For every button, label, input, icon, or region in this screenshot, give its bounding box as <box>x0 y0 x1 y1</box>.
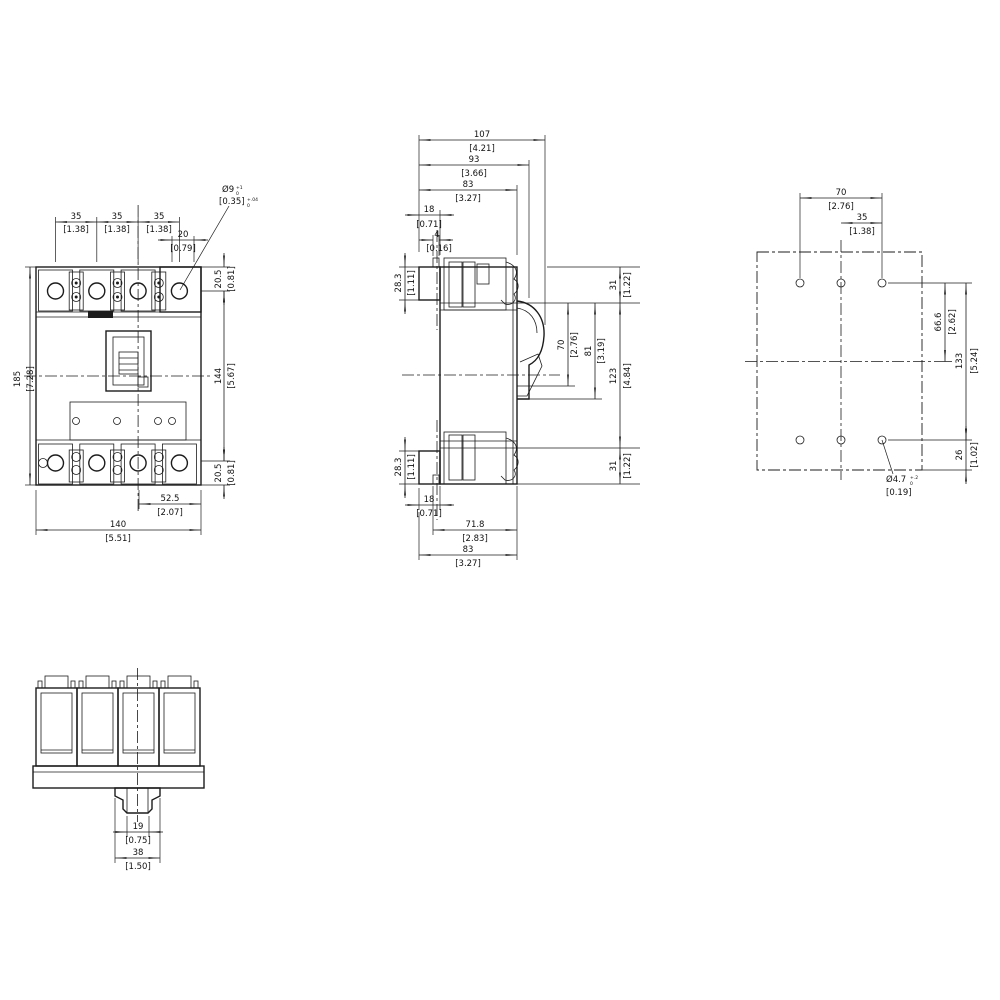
toggle-handle <box>106 331 151 391</box>
dim-body-height-in: [5.67] <box>227 363 237 389</box>
dim-depth-total-in: [4.21] <box>469 144 495 154</box>
dim-depth-escutcheon-in: [3.66] <box>461 169 487 179</box>
dim-rail-width-mm: 38 <box>133 848 144 858</box>
dim-hole-pitch-half-mm: 35 <box>857 213 868 223</box>
dim-width-mm: 140 <box>110 520 126 530</box>
side-handle <box>517 301 544 399</box>
dim-gap4-in: [0.16] <box>426 244 452 254</box>
dim-pole-pitch-3-in: [1.38] <box>146 225 172 235</box>
mounting-hole-leader <box>882 440 893 474</box>
dim-mounting-hole-mm-tol-plus: +.2 <box>910 475 918 481</box>
dim-gap4-mm: 4 <box>434 230 439 240</box>
dim-body-height-mm: 144 <box>214 368 224 384</box>
dim-width-in: [5.51] <box>105 534 131 544</box>
dim-pole-pitch-1-in: [1.38] <box>63 225 89 235</box>
dim-rear-step-mm: 18 <box>424 205 435 215</box>
dim-escutcheon-window-mm: 81 <box>584 346 594 357</box>
dimension-drawing-canvas: 35 [1.38] 35 [1.38] 35 [1.38] 20 [0.79] … <box>0 0 1000 1000</box>
dim-hole-pitch-in: [2.76] <box>828 202 854 212</box>
dim-pole-pitch-2-mm: 35 <box>112 212 123 222</box>
dim-top-section-in: [1.22] <box>623 272 633 298</box>
dim-rear-step-in: [0.71] <box>416 220 442 230</box>
dim-hole-to-center-mm: 66.6 <box>934 313 944 332</box>
dim-offset20-mm: 20 <box>178 230 189 240</box>
dim-bottom-section-mm: 31 <box>609 461 619 472</box>
dim-pole-pitch-3-mm: 35 <box>154 212 165 222</box>
dim-top-margin-mm: 20.5 <box>214 270 224 289</box>
breaker-footprint-phantom <box>757 252 922 470</box>
dim-height-in: [7.28] <box>26 366 36 392</box>
dim-terminal-height-bottom-in: [1.11] <box>407 454 417 480</box>
accessory-cover <box>70 402 186 440</box>
dim-rail-slot-in: [0.75] <box>125 836 151 846</box>
dim-terminal-height-bottom-mm: 28.3 <box>394 458 404 477</box>
dim-hole-to-center-in: [2.62] <box>948 309 958 335</box>
mounting-hole <box>796 279 804 287</box>
dim-rail-slot-mm: 19 <box>133 822 144 832</box>
dim-depth-body-bottom-in: [3.27] <box>455 559 481 569</box>
dim-handle-window-mm: 70 <box>557 340 567 351</box>
front-view: 35 [1.38] 35 [1.38] 35 [1.38] 20 [0.79] … <box>13 184 258 544</box>
side-view: 107 [4.21] 93 [3.66] 83 [3.27] 18 [0.71]… <box>394 130 640 569</box>
rear-drilling-view: 70 [2.76] 35 [1.38] 66.6 [2.62] 133 [5.2… <box>745 188 980 498</box>
dim-escutcheon-window-in: [3.19] <box>597 338 607 364</box>
dim-terminal-hole-in: [0.35] <box>219 197 245 207</box>
dim-offset20-in: [0.79] <box>170 244 196 254</box>
dim-hole-pitch-half-in: [1.38] <box>849 227 875 237</box>
dim-depth-escutcheon-mm: 93 <box>469 155 480 165</box>
bottom-dimensions: 19 [0.75] 38 [1.50] <box>113 798 163 872</box>
dim-hole-rows-in: [5.24] <box>970 348 980 374</box>
dim-terminal-height-top-mm: 28.3 <box>394 274 404 293</box>
top-terminals <box>39 267 202 312</box>
dim-mid-section-in: [4.84] <box>623 363 633 389</box>
dim-pole-pitch-1-mm: 35 <box>71 212 82 222</box>
bottom-terminals <box>39 444 197 484</box>
dim-mid-section-mm: 123 <box>609 368 619 384</box>
dim-hole-pitch-mm: 70 <box>836 188 847 198</box>
bottom-view: 19 [0.75] 38 [1.50] <box>33 668 204 872</box>
rating-label <box>88 311 113 318</box>
dim-terminal-hole-in-tol-minus: 0 <box>247 203 250 209</box>
side-top-terminal <box>433 258 518 310</box>
dim-rear-step-bottom-in: [0.71] <box>416 509 442 519</box>
dim-handle-window-in: [2.76] <box>570 332 580 358</box>
dim-depth-lower-in: [2.83] <box>462 534 488 544</box>
technical-drawing: 35 [1.38] 35 [1.38] 35 [1.38] 20 [0.79] … <box>0 0 1000 1000</box>
dim-depth-total-mm: 107 <box>474 130 490 140</box>
rear-dimensions: 70 [2.76] 35 [1.38] 66.6 [2.62] 133 [5.2… <box>800 188 980 498</box>
pole-modules <box>36 676 200 766</box>
dim-terminal-hole-mm-tol-plus: +1 <box>236 185 243 191</box>
dim-terminal-hole-in-tol-plus: +.04 <box>247 197 258 203</box>
dim-mounting-hole-in: [0.19] <box>886 488 912 498</box>
breaker-side-outline <box>440 267 517 484</box>
dim-bottom-margin-mm: 20.5 <box>214 464 224 483</box>
dim-rail-width-in: [1.50] <box>125 862 151 872</box>
mounting-hole <box>796 436 804 444</box>
dim-terminal-hole-mm: Ø9 <box>222 184 234 195</box>
side-bottom-terminal <box>433 432 518 484</box>
dim-depth-lower-mm: 71.8 <box>466 520 485 530</box>
dim-depth-body-in: [3.27] <box>455 194 481 204</box>
dim-pole-pitch-2-in: [1.38] <box>104 225 130 235</box>
dim-half-width-in: [2.07] <box>157 508 183 518</box>
dim-depth-body-bottom-mm: 83 <box>463 545 474 555</box>
dim-bottom-margin-in: [0.81] <box>227 460 237 486</box>
dim-hole-rows-mm: 133 <box>955 353 965 369</box>
dim-mounting-hole-mm: Ø4.7 <box>886 474 906 485</box>
dim-bottom-section-in: [1.22] <box>623 453 633 479</box>
base-plate <box>33 766 204 788</box>
dim-top-margin-in: [0.81] <box>227 266 237 292</box>
dim-height-mm: 185 <box>13 371 23 387</box>
dim-depth-body-mm: 83 <box>463 180 474 190</box>
dim-hole-to-edge-mm: 26 <box>955 450 965 461</box>
dim-half-width-mm: 52.5 <box>161 494 180 504</box>
dim-terminal-height-top-in: [1.11] <box>407 270 417 296</box>
dim-mounting-hole-mm-tol-minus: 0 <box>910 481 913 487</box>
dim-top-section-mm: 31 <box>609 280 619 291</box>
dim-hole-to-edge-in: [1.02] <box>970 442 980 468</box>
mounting-hole <box>878 279 886 287</box>
